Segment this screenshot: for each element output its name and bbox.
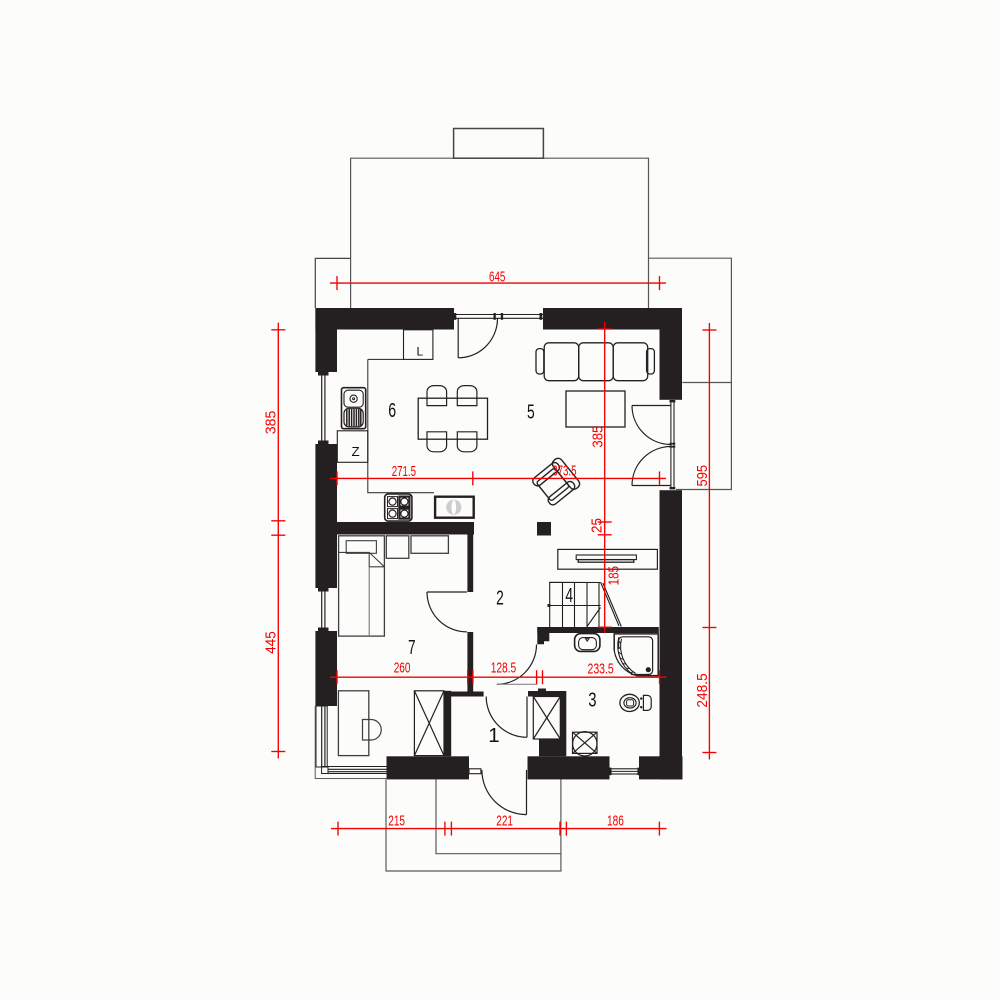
svg-text:25: 25 [590, 518, 606, 533]
svg-text:645: 645 [489, 270, 505, 286]
svg-text:215: 215 [388, 813, 405, 829]
svg-text:221: 221 [496, 813, 513, 829]
svg-text:385: 385 [263, 411, 279, 435]
svg-text:1: 1 [488, 724, 499, 747]
svg-text:373.5: 373.5 [552, 464, 576, 480]
svg-text:233.5: 233.5 [588, 662, 614, 678]
svg-text:260: 260 [394, 661, 411, 677]
svg-text:385: 385 [590, 426, 606, 448]
svg-text:271.5: 271.5 [392, 464, 416, 480]
svg-text:Z: Z [352, 444, 360, 459]
svg-text:186: 186 [607, 813, 624, 829]
svg-text:6: 6 [388, 399, 396, 422]
svg-text:185: 185 [607, 566, 623, 585]
svg-text:445: 445 [263, 631, 279, 654]
svg-text:128.5: 128.5 [491, 661, 517, 677]
svg-text:4: 4 [565, 584, 573, 607]
svg-text:2: 2 [496, 587, 504, 610]
svg-text:248.5: 248.5 [695, 673, 711, 707]
svg-text:7: 7 [408, 636, 416, 659]
svg-text:L: L [417, 344, 424, 358]
svg-text:3: 3 [588, 689, 596, 712]
svg-text:595: 595 [695, 465, 711, 487]
svg-text:5: 5 [527, 401, 535, 424]
